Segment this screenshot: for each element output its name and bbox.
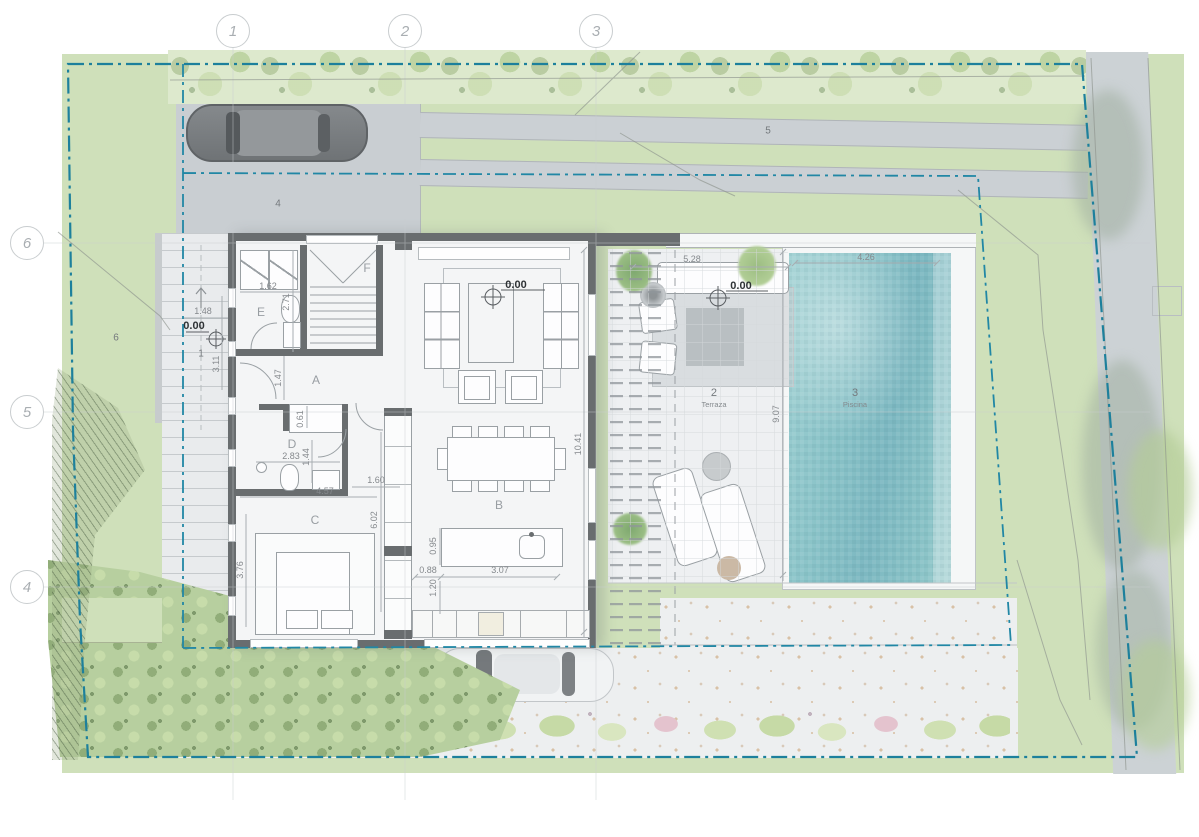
dimension-label: 1.20 — [428, 579, 438, 597]
window — [228, 524, 236, 542]
room-label-c: C — [311, 513, 320, 527]
area-label-driveway: 4 — [275, 199, 281, 210]
pool-deck — [660, 598, 1017, 650]
grid-bubble-3: 3 — [579, 14, 613, 48]
dimension-label: 4.57 — [316, 486, 334, 496]
terrace-top-wall — [666, 233, 976, 248]
armchair-seat — [511, 376, 537, 400]
partition — [395, 241, 412, 250]
grid-bubble-label: 5 — [23, 404, 31, 421]
counter-divider — [456, 610, 457, 638]
dimension-label: 1.44 — [301, 448, 311, 466]
counter-divider — [432, 610, 433, 638]
dimension-label: 9.07 — [771, 405, 781, 423]
area-number: 6 — [113, 333, 119, 344]
sink — [283, 322, 301, 348]
area-number: 5 — [765, 126, 771, 137]
area-number: 4 — [275, 199, 281, 210]
window — [228, 449, 236, 467]
pool-shelf — [933, 253, 951, 583]
partition — [283, 404, 289, 431]
area-name: Terraza — [701, 400, 726, 409]
dimension-label: 1.62 — [259, 281, 277, 291]
grid-bubble-6: 6 — [10, 226, 44, 260]
window — [306, 235, 378, 244]
armchair-seat — [464, 376, 490, 400]
partition — [300, 245, 307, 353]
window — [228, 288, 236, 308]
window — [588, 540, 596, 580]
grid-bubble-label: 4 — [23, 579, 31, 596]
dimension-label: 0.61 — [295, 410, 305, 428]
level-label: 0.00 — [505, 279, 526, 291]
counter-divider — [566, 610, 567, 638]
faucet — [529, 532, 534, 537]
window — [228, 596, 236, 616]
counter-divider — [520, 610, 521, 638]
toilet — [280, 464, 299, 491]
grid-bubble-label: 2 — [401, 23, 409, 40]
dimension-label: 6.02 — [369, 511, 379, 529]
palm-plant — [616, 250, 652, 292]
house-top-wall-extension — [596, 233, 680, 246]
grid-bubble-4: 4 — [10, 570, 44, 604]
sofa — [543, 283, 579, 369]
tree-shadow — [1072, 90, 1144, 240]
light-symbol — [256, 462, 267, 473]
dimension-label: 1.47 — [273, 369, 283, 387]
area-number: 3 — [843, 387, 867, 399]
sofa — [424, 283, 460, 369]
outdoor-chair — [638, 340, 677, 376]
dimension-label: 2.83 — [282, 451, 300, 461]
shear-wall — [384, 546, 412, 556]
site-plan: 1 2 3 6 5 4 A B C D E F 1 2 Terraza 3 Pi… — [0, 0, 1199, 837]
pool-water — [789, 253, 951, 583]
level-label: 0.00 — [730, 280, 751, 292]
palm-plant — [613, 513, 647, 545]
car-dark — [186, 102, 368, 164]
area-label-street: 5 — [765, 126, 771, 137]
window — [418, 247, 570, 260]
area-label-entry: 1 — [198, 349, 204, 360]
grid-bubble-1: 1 — [216, 14, 250, 48]
area-label-terraza: 2 Terraza — [701, 387, 726, 409]
dimension-label: 5.28 — [683, 254, 701, 264]
room-label-d: D — [288, 437, 297, 451]
tree-canopy — [1120, 640, 1190, 750]
level-label: 0.00 — [183, 320, 204, 332]
dimension-label: 3.11 — [211, 356, 221, 373]
grid-bubble-5: 5 — [10, 395, 44, 429]
dimension-label: 0.88 — [419, 565, 437, 575]
area-label-piscina: 3 Piscina — [843, 387, 867, 409]
dimension-label: 0.95 — [428, 537, 438, 555]
window — [250, 639, 358, 648]
island-sink — [519, 535, 545, 559]
pillow — [286, 610, 318, 629]
area-name: Piscina — [843, 400, 867, 409]
area-number: 2 — [701, 387, 726, 399]
utility-box — [1152, 286, 1182, 316]
room-label-f: F — [363, 261, 370, 275]
dimension-label: 4.26 — [857, 252, 875, 262]
dimension-label: 10.41 — [573, 433, 583, 456]
dimension-label: 1.48 — [194, 306, 212, 316]
hedge — [168, 50, 1086, 104]
window — [228, 397, 236, 415]
area-number: 1 — [198, 349, 204, 360]
grid-bubble-label: 3 — [592, 23, 600, 40]
room-label-b: B — [495, 498, 503, 512]
dimension-label: 3.76 — [235, 561, 245, 579]
grid-bubble-label: 1 — [229, 23, 237, 40]
coffee-table — [468, 283, 514, 363]
room-label-e: E — [257, 305, 265, 319]
dimension-label: 2.71 — [281, 293, 291, 311]
partition — [376, 245, 383, 356]
side-table-round — [717, 556, 741, 580]
dimension-label: 3.07 — [491, 565, 509, 575]
side-wall-strip — [155, 233, 162, 423]
outdoor-table — [686, 308, 744, 366]
shear-wall — [384, 630, 412, 639]
partition — [342, 404, 348, 494]
wardrobe-strip — [384, 408, 412, 639]
window — [588, 468, 596, 523]
side-table-round — [702, 452, 731, 481]
window — [588, 294, 596, 356]
grid-bubble-2: 2 — [388, 14, 422, 48]
grid-bubble-label: 6 — [23, 235, 31, 252]
cooktop — [478, 612, 504, 636]
window — [228, 341, 236, 357]
shear-wall — [384, 408, 412, 416]
area-label-garden: 6 — [113, 333, 119, 344]
dining-table — [447, 437, 555, 481]
partition — [236, 349, 383, 356]
room-label-a: A — [312, 373, 320, 387]
dimension-label: 1.60 — [367, 475, 385, 485]
tree-canopy — [1128, 430, 1192, 550]
pillow — [321, 610, 353, 629]
window — [424, 639, 590, 648]
